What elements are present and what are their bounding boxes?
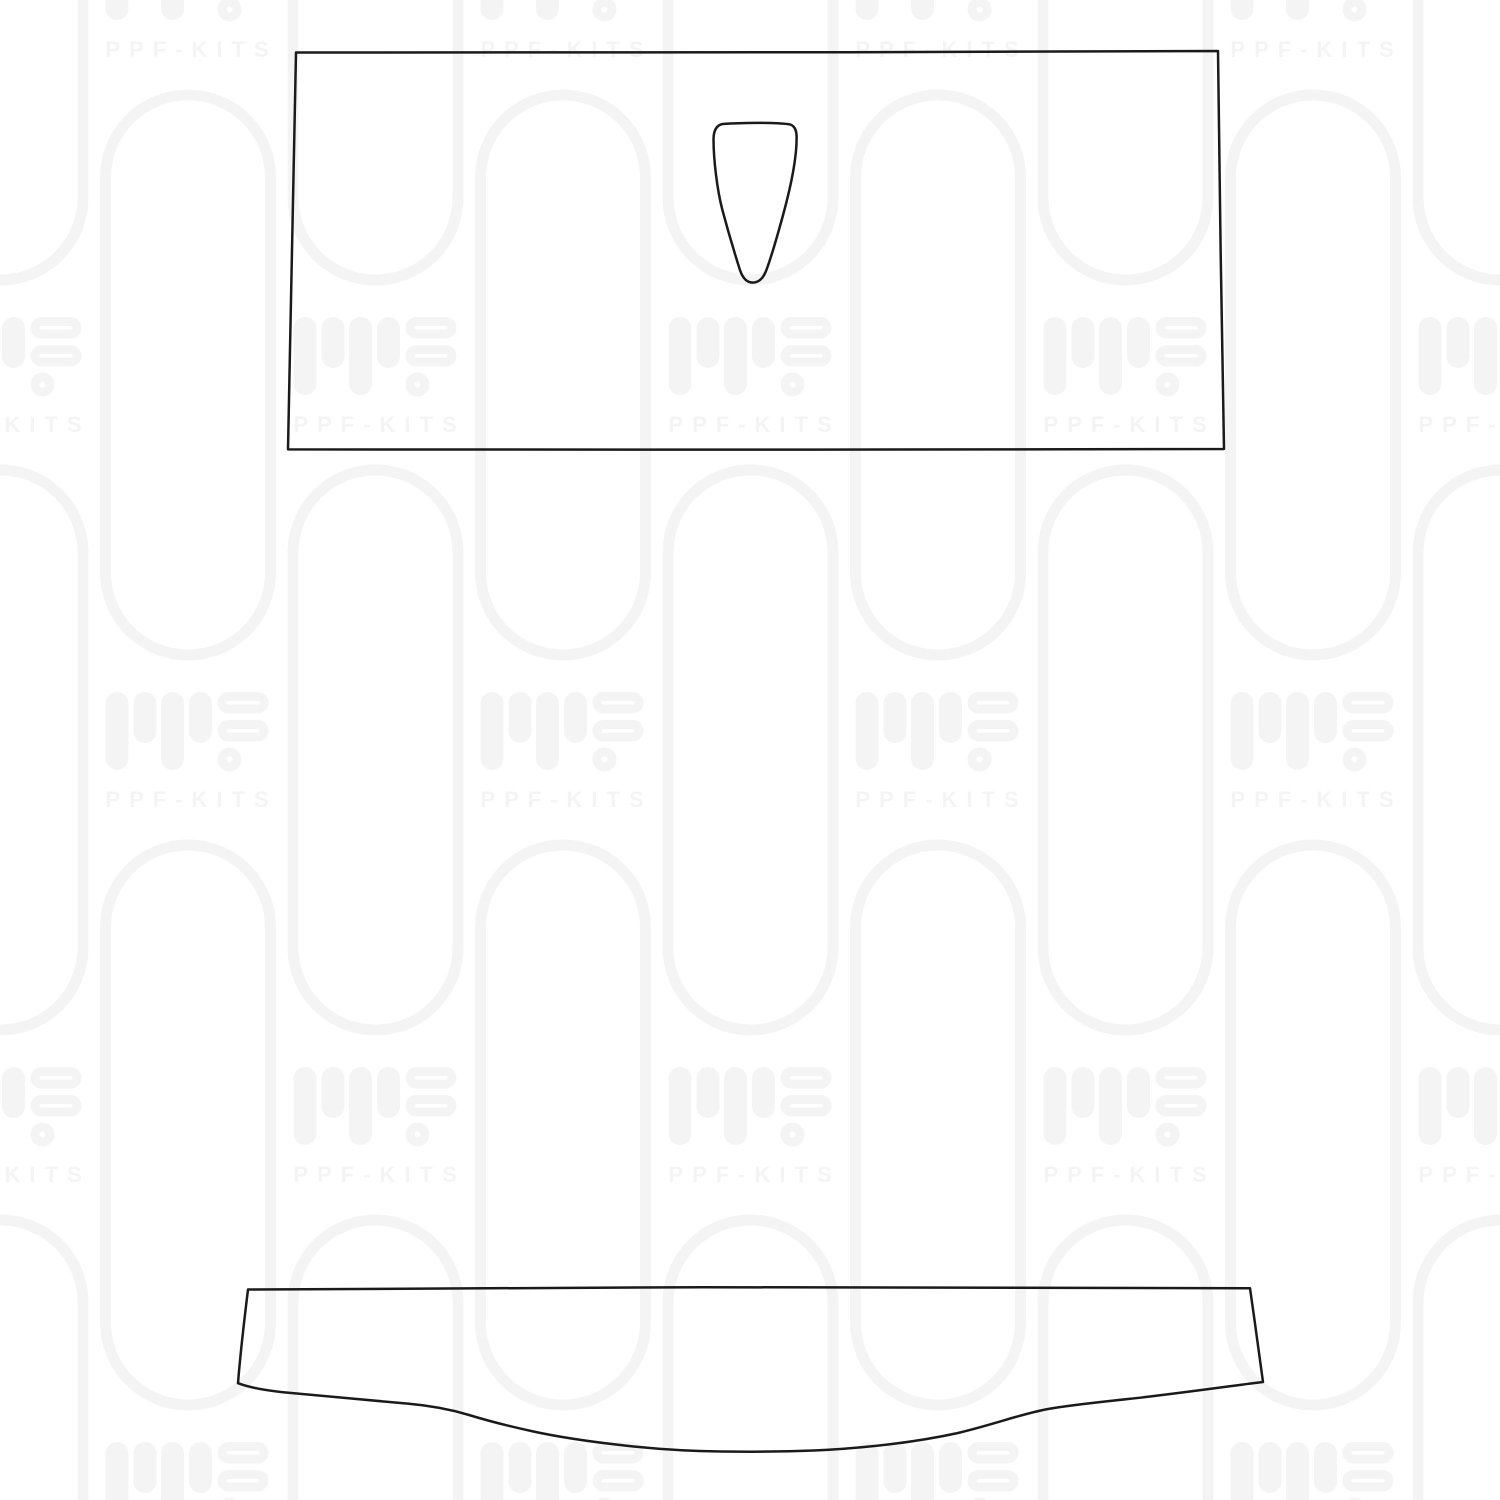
logo-ring-icon [35,1127,50,1142]
logo-bar-icon [536,1442,559,1500]
capsule-outline [1418,1220,1500,1500]
logo-bar-icon [509,692,532,743]
logo-bar-icon [939,1442,962,1493]
ppf-template-canvas: PPF-KITSPPF-KITSPPF-KITSPPF-KITSPPF-KITS… [0,0,1500,1500]
logo-capsule-icon [597,725,639,738]
logo-bar-icon [106,0,129,20]
logo-capsule-icon [1160,1100,1202,1113]
ppf-kits-logo: PPF-KITS [105,0,277,62]
capsule-outline [856,95,1021,655]
logo-bar-icon [1286,0,1309,20]
watermark-text: PPF-KITS [480,37,652,62]
logo-bar-icon [1474,1067,1497,1145]
logo-ring-icon [222,752,237,767]
watermark-text: PPF-KITS [480,787,652,812]
logo-capsule-icon [35,1072,77,1085]
logo-capsule-icon [1347,1475,1389,1488]
logo-capsule-icon [785,322,827,335]
logo-bar-icon [161,0,184,20]
logo-bar-icon [481,692,504,770]
watermark-text: PPF-KITS [668,1162,840,1187]
capsule-outline [481,845,646,1405]
logo-bar-icon [1314,1442,1337,1493]
watermark-text: PPF-KITS [1230,37,1402,62]
logo-bar-icon [911,692,934,770]
logo-bar-icon [669,317,692,395]
logo-capsule-icon [1160,322,1202,335]
ppf-kits-logo: PPF-KITS [855,692,1027,812]
watermark-text: PPF-KITS [855,787,1027,812]
logo-bar-icon [161,692,184,770]
watermark-text: PPF-KITS [1043,1162,1215,1187]
logo-bar-icon [481,1442,504,1500]
logo-bar-icon [1231,0,1254,20]
watermark-text: PPF-KITS [0,1162,91,1187]
capsule-outline [106,845,271,1405]
logo-ring-icon [972,752,987,767]
ppf-kits-logo: PPF-KITS [105,692,277,812]
panel-template-outline [288,51,1224,450]
ppf-kits-logo: PPF-KITS [668,1067,840,1187]
logo-ring-icon [410,377,425,392]
logo-bar-icon [481,0,504,20]
logo-capsule-icon [410,1100,452,1113]
logo-bar-icon [294,1067,317,1145]
ppf-kits-logo: PPF-KITS [105,1442,277,1500]
logo-bar-icon [911,1442,934,1500]
logo-capsule-icon [597,1447,639,1460]
logo-bar-icon [349,1067,372,1145]
logo-bar-icon [189,1442,212,1493]
ppf-kits-logo: PPF-KITS [293,1067,465,1187]
logo-bar-icon [1099,1067,1122,1145]
logo-bar-icon [1314,692,1337,743]
logo-ring-icon [222,2,237,17]
logo-bar-icon [884,1442,907,1493]
capsule-outline [293,0,458,280]
logo-ring-icon [1160,377,1175,392]
watermark-text: PPF-KITS [105,787,277,812]
logo-capsule-icon [410,322,452,335]
lower-strip-template-outline [238,1287,1263,1452]
capsule-outline [1231,95,1396,655]
logo-bar-icon [1259,1442,1282,1493]
logo-bar-icon [322,317,345,368]
logo-bar-icon [939,692,962,743]
logo-bar-icon [697,1067,720,1118]
ppf-kits-logo: PPF-KITS [1230,692,1402,812]
logo-bar-icon [2,317,25,368]
logo-capsule-icon [972,725,1014,738]
logo-ring-icon [972,2,987,17]
logo-capsule-icon [1160,350,1202,363]
logo-bar-icon [1072,317,1095,368]
ppf-kits-logo: PPF-KITS [293,317,465,437]
logo-bar-icon [349,317,372,395]
logo-capsule-icon [597,697,639,710]
logo-bar-icon [1447,317,1470,368]
logo-capsule-icon [972,1475,1014,1488]
logo-ring-icon [597,752,612,767]
logo-bar-icon [106,692,129,770]
logo-ring-icon [410,1127,425,1142]
logo-capsule-icon [1160,1072,1202,1085]
logo-capsule-icon [972,697,1014,710]
watermark-text: PPF-KITS [1043,412,1215,437]
watermark-text: PPF-KITS [293,412,465,437]
logo-bar-icon [322,1067,345,1118]
logo-bar-icon [911,0,934,20]
logo-bar-icon [509,1442,532,1493]
logo-bar-icon [1127,317,1150,368]
ppf-kits-logo: PPF-KITS [668,317,840,437]
logo-bar-icon [161,1442,184,1500]
logo-bar-icon [1044,1067,1067,1145]
logo-ring-icon [785,1127,800,1142]
watermark-text: PPF-KITS [1418,1162,1500,1187]
watermark-text: PPF-KITS [855,37,1027,62]
capsule-outline [106,95,271,655]
watermark-text: PPF-KITS [293,1162,465,1187]
logo-capsule-icon [1347,725,1389,738]
capsule-outline [668,1220,833,1500]
capsule-outline [1043,470,1208,1030]
watermark-text: PPF-KITS [668,412,840,437]
capsule-outline [1043,0,1208,280]
logo-bar-icon [1286,1442,1309,1500]
template-shapes [238,51,1263,1452]
logo-bar-icon [134,692,157,743]
logo-ring-icon [35,377,50,392]
ppf-kits-logo: PPF-KITS [1418,1067,1500,1187]
logo-capsule-icon [222,1475,264,1488]
ppf-kits-logo: PPF-KITS [480,1442,652,1500]
logo-capsule-icon [35,322,77,335]
logo-bar-icon [1127,1067,1150,1118]
capsule-outline [1418,470,1500,1030]
capsule-outline [293,470,458,1030]
logo-bar-icon [1072,1067,1095,1118]
capsule-outline [293,1220,458,1500]
logo-capsule-icon [35,1100,77,1113]
ppf-kits-logo: PPF-KITS [1043,1067,1215,1187]
ppf-template-svg: PPF-KITSPPF-KITSPPF-KITSPPF-KITSPPF-KITS… [0,0,1500,1500]
logo-capsule-icon [222,1447,264,1460]
logo-bar-icon [856,0,879,20]
logo-capsule-icon [222,725,264,738]
capsule-outline [0,470,83,1030]
logo-bar-icon [669,1067,692,1145]
logo-bar-icon [189,692,212,743]
watermark-text: PPF-KITS [1230,787,1402,812]
logo-bar-icon [1286,692,1309,770]
logo-capsule-icon [785,1072,827,1085]
capsule-outline [668,470,833,1030]
logo-bar-icon [134,1442,157,1493]
logo-bar-icon [697,317,720,368]
capsule-outline [0,1220,83,1500]
ppf-kits-logo: PPF-KITS [0,317,91,437]
logo-bar-icon [377,317,400,368]
logo-capsule-icon [597,1475,639,1488]
logo-bar-icon [2,1067,25,1118]
logo-ring-icon [1347,752,1362,767]
logo-bar-icon [564,692,587,743]
logo-ring-icon [597,2,612,17]
logo-capsule-icon [785,1100,827,1113]
logo-bar-icon [106,1442,129,1500]
logo-capsule-icon [1347,1447,1389,1460]
ppf-kits-logo: PPF-KITS [855,1442,1027,1500]
logo-bar-icon [1447,1067,1470,1118]
logo-bar-icon [1099,317,1122,395]
logo-bar-icon [1419,1067,1442,1145]
logo-bar-icon [377,1067,400,1118]
logo-bar-icon [536,692,559,770]
logo-ring-icon [1347,2,1362,17]
logo-bar-icon [1231,1442,1254,1500]
capsule-outline [856,845,1021,1405]
logo-bar-icon [1044,317,1067,395]
logo-bar-icon [1419,317,1442,395]
ppf-kits-logo: PPF-KITS [480,692,652,812]
logo-bar-icon [1259,692,1282,743]
capsule-outline [1043,1220,1208,1500]
logo-capsule-icon [410,350,452,363]
logo-ring-icon [1160,1127,1175,1142]
logo-capsule-icon [1347,697,1389,710]
logo-bar-icon [856,692,879,770]
ppf-kits-logo: PPF-KITS [1418,317,1500,437]
watermark-text: PPF-KITS [1418,412,1500,437]
ppf-kits-logo: PPF-KITS [1043,317,1215,437]
logo-bar-icon [564,1442,587,1493]
ppf-kits-logo: PPF-KITS [1230,1442,1402,1500]
watermark-logo-pattern: PPF-KITSPPF-KITSPPF-KITSPPF-KITSPPF-KITS… [0,0,1500,1500]
capsule-outline [1418,0,1500,280]
watermark-text: PPF-KITS [105,37,277,62]
logo-ring-icon [785,377,800,392]
ppf-kits-logo: PPF-KITS [0,1067,91,1187]
logo-bar-icon [1231,692,1254,770]
logo-bar-icon [536,0,559,20]
logo-bar-icon [856,1442,879,1500]
logo-bar-icon [724,317,747,395]
logo-bar-icon [1474,317,1497,395]
logo-bar-icon [294,317,317,395]
logo-bar-icon [752,317,775,368]
capsule-outline [481,95,646,655]
capsule-outline [0,0,83,280]
logo-capsule-icon [972,1447,1014,1460]
logo-bar-icon [884,692,907,743]
capsule-outline [668,0,833,280]
logo-capsule-icon [410,1072,452,1085]
logo-bar-icon [752,1067,775,1118]
logo-capsule-icon [785,350,827,363]
watermark-text: PPF-KITS [0,412,91,437]
logo-bar-icon [724,1067,747,1145]
logo-capsule-icon [35,350,77,363]
ppf-kits-logo: PPF-KITS [1230,0,1402,62]
logo-capsule-icon [222,697,264,710]
emblem-cutout-outline [714,123,797,283]
